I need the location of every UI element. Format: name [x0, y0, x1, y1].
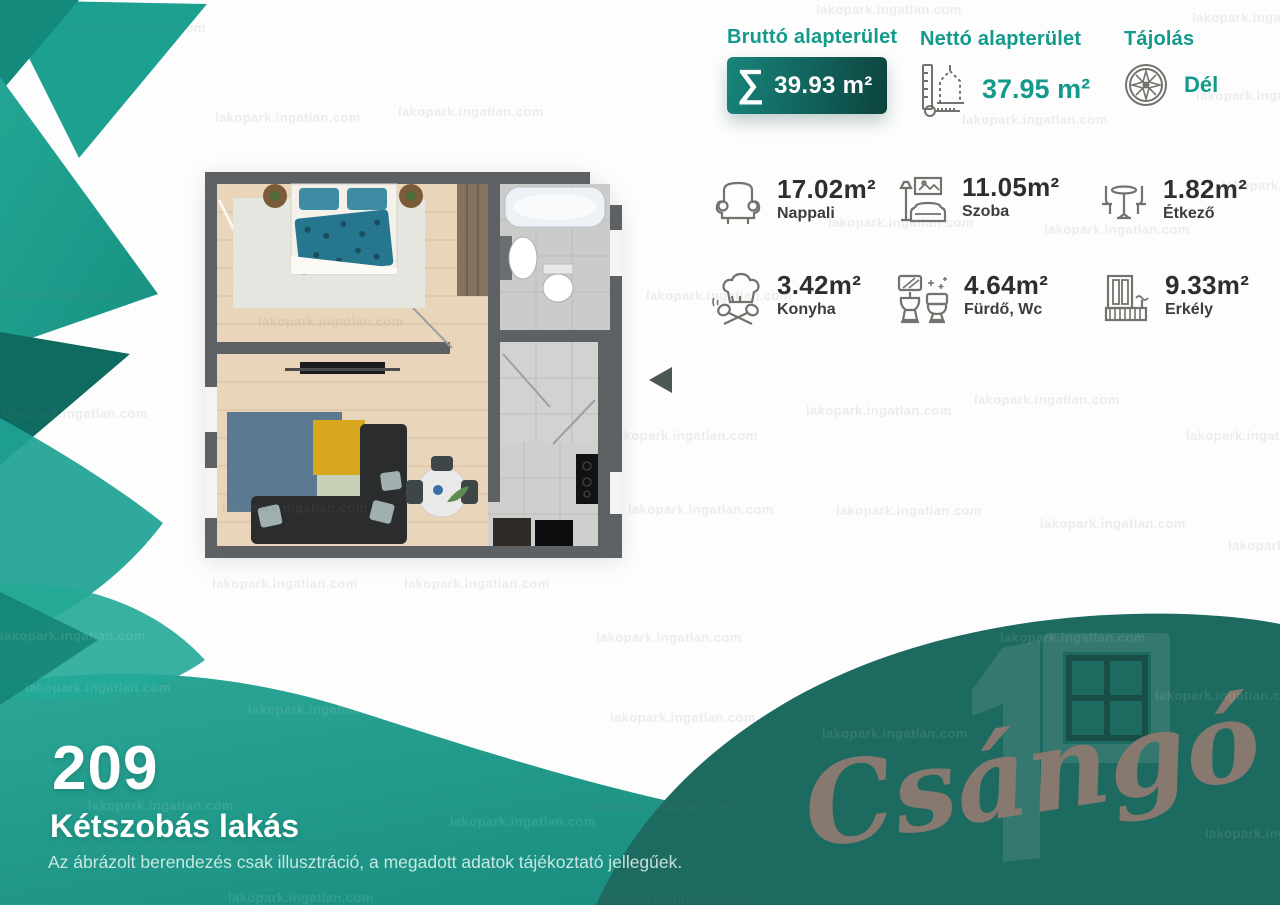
background-shapes: Csángó: [0, 0, 1280, 905]
room-label: Étkező: [1163, 205, 1247, 223]
chef-hat-icon: [710, 272, 764, 328]
net-area-block: Nettó alapterület 37.95 m²: [920, 28, 1090, 117]
bathroom-icon: [895, 272, 951, 328]
balcony-icon: [1100, 272, 1152, 326]
orientation-label: Tájolás: [1124, 28, 1218, 51]
room-area: 4.64m²: [964, 272, 1048, 298]
room-stat-furdo: 4.64m² Fürdő, Wc: [895, 272, 1048, 328]
room-label: Nappali: [777, 205, 876, 223]
room-area: 11.05m²: [962, 174, 1060, 200]
room-area: 3.42m²: [777, 272, 861, 298]
net-area-label: Nettó alapterület: [920, 28, 1090, 51]
orientation-value: Dél: [1184, 72, 1218, 98]
room-area: 17.02m²: [777, 176, 876, 202]
room-stat-nappali: 17.02m² Nappali: [712, 176, 876, 228]
left-triangles-decoration: [0, 0, 207, 640]
net-area-value: 37.95 m²: [982, 74, 1090, 105]
sofa-lamp-icon: [893, 174, 949, 230]
armchair-icon: [712, 176, 764, 228]
room-label: Szoba: [962, 203, 1060, 221]
previous-arrow-button[interactable]: [649, 367, 672, 393]
room-label: Erkély: [1165, 301, 1249, 319]
room-area: 9.33m²: [1165, 272, 1249, 298]
disclaimer-text: Az ábrázolt berendezés csak illusztráció…: [48, 852, 682, 873]
gross-area-value: 39.93 m²: [774, 72, 872, 100]
gross-area-box: ∑ 39.93 m²: [727, 57, 887, 114]
room-stat-etkezo: 1.82m² Étkező: [1098, 176, 1247, 226]
room-stat-erkely: 9.33m² Erkély: [1100, 272, 1249, 326]
sum-icon: ∑: [737, 65, 764, 103]
measure-ruler-icon: [920, 61, 968, 117]
room-label: Konyha: [777, 301, 861, 319]
dining-set-icon: [1098, 176, 1150, 226]
room-area: 1.82m²: [1163, 176, 1247, 202]
room-stat-szoba: 11.05m² Szoba: [893, 174, 1060, 230]
compass-icon: [1124, 63, 1168, 107]
gross-area-label: Bruttó alapterület: [727, 26, 897, 49]
apartment-type: Kétszobás lakás: [50, 808, 299, 845]
floor-plan: [205, 172, 622, 558]
room-stat-konyha: 3.42m² Konyha: [710, 272, 861, 328]
gross-area-block: Bruttó alapterület ∑ 39.93 m²: [727, 26, 897, 114]
orientation-block: Tájolás Dél: [1124, 28, 1218, 107]
page: Csángó: [0, 0, 1280, 905]
apartment-number: 209: [52, 733, 158, 804]
room-label: Fürdő, Wc: [964, 301, 1048, 319]
